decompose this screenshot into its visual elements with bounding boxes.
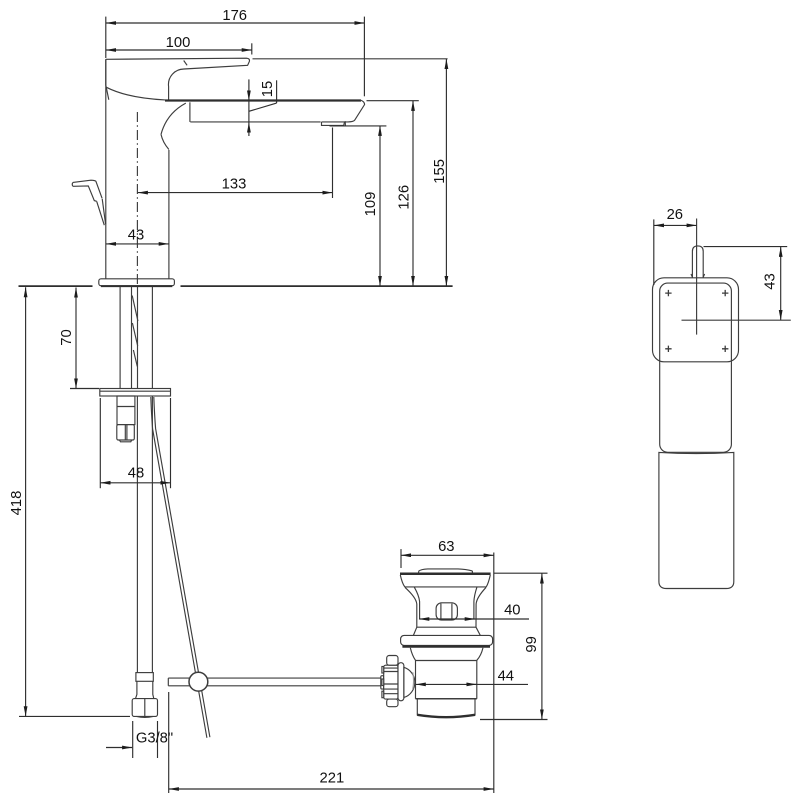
svg-text:176: 176 <box>222 8 247 24</box>
svg-text:15: 15 <box>260 81 276 97</box>
svg-text:126: 126 <box>396 185 412 210</box>
svg-text:100: 100 <box>166 35 191 51</box>
svg-text:99: 99 <box>524 636 540 652</box>
svg-text:43: 43 <box>128 228 144 244</box>
svg-text:109: 109 <box>363 192 379 217</box>
svg-text:221: 221 <box>320 770 345 786</box>
svg-text:63: 63 <box>438 539 454 555</box>
svg-text:155: 155 <box>432 159 448 184</box>
svg-text:418: 418 <box>9 491 25 516</box>
svg-text:44: 44 <box>498 668 514 684</box>
svg-text:70: 70 <box>59 329 75 345</box>
svg-text:40: 40 <box>504 602 520 618</box>
svg-text:G3/8": G3/8" <box>136 731 173 747</box>
svg-text:43: 43 <box>763 273 779 289</box>
svg-text:48: 48 <box>128 466 144 482</box>
svg-text:26: 26 <box>667 207 683 223</box>
svg-text:133: 133 <box>222 176 247 192</box>
